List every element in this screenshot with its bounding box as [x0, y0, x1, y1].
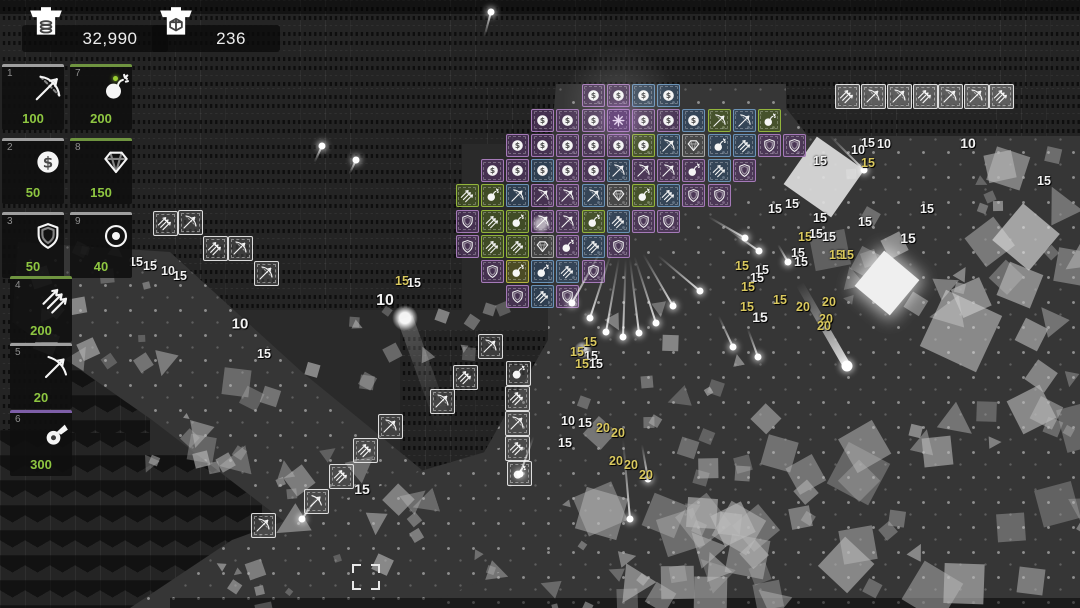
tower-tile-shield[interactable]	[657, 210, 680, 233]
damage-number: 20	[639, 468, 653, 482]
tower-tile-arrows[interactable]	[481, 235, 504, 258]
slot-rank-bar	[70, 138, 132, 141]
svg-text:$: $	[515, 141, 520, 150]
damage-number: 15	[558, 436, 572, 450]
tower-tile-diamond[interactable]	[682, 134, 705, 157]
enemy-square	[461, 346, 476, 361]
queued-tower-arrows[interactable]	[835, 84, 860, 109]
damage-number: 15	[589, 357, 603, 371]
tower-tile-arrows[interactable]	[481, 210, 504, 233]
projectile	[756, 248, 763, 255]
projectile	[319, 143, 326, 150]
slot-hotkey: 3	[7, 216, 13, 227]
damage-number: 15	[794, 255, 808, 269]
damage-number: 20	[817, 319, 831, 333]
projectile	[755, 354, 762, 361]
tower-tile-coin[interactable]: $	[531, 134, 554, 157]
damage-number: 10	[561, 414, 575, 428]
enemy-square	[922, 435, 954, 467]
tower-tile-arrows[interactable]	[708, 159, 731, 182]
damage-number: 15	[741, 280, 755, 294]
damage-number: 10	[877, 137, 891, 151]
svg-text:$: $	[540, 116, 545, 125]
damage-number: 15	[822, 230, 836, 244]
projectile	[488, 9, 495, 16]
enemy-square	[221, 368, 251, 398]
glow-effect	[531, 214, 551, 234]
slot-hotkey: 8	[75, 142, 81, 153]
slot-hotkey: 4	[15, 280, 21, 291]
gold-value: 32,990	[83, 29, 138, 49]
ghost-tower-crossbow[interactable]	[478, 334, 503, 359]
damage-number: 20	[822, 295, 836, 309]
ghost-tower-arrows[interactable]	[353, 438, 378, 463]
tower-tile-arrows[interactable]	[531, 285, 554, 308]
tower-tile-shield[interactable]	[481, 260, 504, 283]
slot-hotkey: 9	[75, 216, 81, 227]
slot-rank-bar	[10, 276, 72, 279]
gem-value: 236	[216, 29, 246, 49]
tower-tile-shield[interactable]	[758, 134, 781, 157]
shop-slot-3[interactable]: 350	[2, 212, 64, 278]
tower-tile-crossbow[interactable]	[607, 159, 630, 182]
ghost-tower-crossbow[interactable]	[251, 513, 276, 538]
tower-tile-shield[interactable]	[632, 210, 655, 233]
damage-number: 10	[376, 292, 394, 310]
tower-tile-coin[interactable]: $	[682, 109, 705, 132]
tower-tile-coin[interactable]: $	[582, 159, 605, 182]
slot-cost: 20	[10, 390, 72, 405]
shop-slot-1[interactable]: 1100	[2, 64, 64, 130]
enemy-square	[254, 585, 264, 595]
ghost-tower-crossbow[interactable]	[228, 236, 253, 261]
queued-tower-crossbow[interactable]	[938, 84, 963, 109]
projectile	[353, 157, 360, 164]
slot-hotkey: 7	[75, 68, 81, 79]
tower-tile-shield[interactable]	[708, 184, 731, 207]
damage-number: 15	[813, 154, 827, 168]
enemy-square	[463, 313, 480, 330]
tower-tile-crossbow[interactable]	[506, 184, 529, 207]
enemy-square	[976, 401, 996, 421]
enemy-square	[138, 335, 146, 343]
slot-rank-bar	[10, 343, 72, 346]
projectile	[842, 361, 853, 372]
damage-number: 15	[813, 211, 827, 225]
tower-tile-coin[interactable]: $	[531, 109, 554, 132]
tower-tile-bomb[interactable]	[481, 184, 504, 207]
tower-tile-arrows[interactable]	[657, 184, 680, 207]
slot-rank-bar	[2, 64, 64, 67]
damage-number: 15	[257, 347, 271, 361]
enemy-square	[359, 374, 375, 390]
damage-number: 10	[851, 143, 865, 157]
placement-cursor	[352, 564, 380, 590]
enemy-square	[304, 361, 321, 378]
tower-tile-crossbow[interactable]	[632, 159, 655, 182]
ghost-tower-crossbow[interactable]	[178, 210, 203, 235]
tower-tile-crossbow[interactable]	[582, 184, 605, 207]
projectile	[627, 516, 634, 523]
gold-chest-icon	[26, 3, 66, 43]
damage-number: 15	[1037, 174, 1051, 188]
enemy-square	[698, 458, 719, 479]
ghost-tower-crossbow[interactable]	[254, 261, 279, 286]
damage-number: 15	[768, 202, 782, 216]
damage-number: 15	[583, 335, 597, 349]
projectile	[569, 300, 576, 307]
shop-slot-6[interactable]: 6300	[10, 410, 72, 476]
slot-hotkey: 2	[7, 142, 13, 153]
tower-tile-bomb[interactable]	[582, 210, 605, 233]
projectile	[299, 516, 306, 523]
slot-rank-bar	[2, 212, 64, 215]
projectile	[670, 303, 677, 310]
slot-cost: 200	[70, 111, 132, 126]
queued-tower-arrows[interactable]	[913, 84, 938, 109]
tower-tile-arrows[interactable]	[556, 260, 579, 283]
tower-tile-crossbow[interactable]	[733, 109, 756, 132]
damage-number: 20	[624, 458, 638, 472]
ghost-tower-arrows[interactable]	[203, 236, 228, 261]
slot-cost: 200	[10, 323, 72, 338]
slot-hotkey: 1	[7, 68, 13, 79]
enemy-square	[996, 512, 1026, 542]
tower-tile-shield[interactable]	[682, 184, 705, 207]
slot-hotkey: 5	[15, 347, 21, 358]
damage-number: 20	[611, 426, 625, 440]
projectile	[730, 344, 737, 351]
projectile	[587, 315, 594, 322]
tower-tile-shield[interactable]	[733, 159, 756, 182]
svg-text:$: $	[540, 141, 545, 150]
damage-number: 15	[752, 309, 768, 325]
slot-cost: 300	[10, 457, 72, 472]
svg-text:$: $	[540, 166, 545, 175]
damage-number: 20	[596, 421, 610, 435]
shop-slot-7[interactable]: 7200	[70, 64, 132, 130]
enemy-square	[944, 563, 985, 604]
svg-text:$: $	[490, 166, 495, 175]
ghost-tower-crossbow[interactable]	[505, 411, 530, 436]
tower-tile-arrows[interactable]	[733, 134, 756, 157]
ghost-tower-crossbow[interactable]	[378, 414, 403, 439]
tower-tile-bomb[interactable]	[556, 235, 579, 258]
damage-number: 15	[785, 197, 799, 211]
svg-text:$: $	[691, 116, 696, 125]
tower-tile-diamond[interactable]	[531, 235, 554, 258]
slot-cost: 100	[2, 111, 64, 126]
slot-cost: 150	[70, 185, 132, 200]
enemy-square	[641, 375, 654, 388]
tower-tile-crossbow[interactable]	[657, 159, 680, 182]
tower-tile-bomb[interactable]	[632, 184, 655, 207]
tower-tile-crossbow[interactable]	[708, 109, 731, 132]
tower-tile-bomb[interactable]	[506, 260, 529, 283]
damage-number: 15	[173, 269, 187, 283]
tower-tile-coin[interactable]: $	[531, 159, 554, 182]
slot-rank-bar	[70, 64, 132, 67]
damage-number: 15	[858, 215, 872, 229]
queued-tower-crossbow[interactable]	[887, 84, 912, 109]
damage-number: 10	[232, 316, 249, 333]
game-stage: $$$$$$$$$$$$$$$$$$$$$ 151510151015101515…	[0, 0, 1080, 608]
queued-tower-crossbow[interactable]	[861, 84, 886, 109]
shop-slot-9[interactable]: 940	[70, 212, 132, 278]
ghost-tower-arrows[interactable]	[153, 211, 178, 236]
slot-cost: 50	[2, 185, 64, 200]
slot-rank-bar	[10, 410, 72, 413]
damage-number: 15	[861, 156, 875, 170]
projectile	[620, 334, 627, 341]
gem-chest-icon	[156, 3, 196, 43]
slot-hotkey: 6	[15, 414, 21, 425]
tower-tile-diamond[interactable]	[607, 184, 630, 207]
tower-tile-shield[interactable]	[506, 285, 529, 308]
shop-slot-8[interactable]: 8150	[70, 138, 132, 204]
damage-number: 15	[578, 416, 592, 430]
svg-text:$: $	[515, 166, 520, 175]
enemy-square	[349, 317, 360, 328]
damage-number: 15	[900, 230, 916, 246]
shop-slot-4[interactable]: 4200	[10, 276, 72, 342]
slot-cost: 40	[70, 259, 132, 274]
damage-number: 15	[354, 481, 370, 497]
ghost-tower-arrows[interactable]	[329, 464, 354, 489]
tower-tile-bomb[interactable]	[758, 109, 781, 132]
tower-tile-shield[interactable]	[456, 210, 479, 233]
tower-tile-arrows[interactable]	[506, 235, 529, 258]
damage-number: 10	[960, 135, 976, 151]
slot-cost: 50	[2, 259, 64, 274]
enemy-square	[661, 335, 678, 352]
tower-tile-bomb[interactable]	[708, 134, 731, 157]
svg-text:$: $	[565, 166, 570, 175]
slot-rank-bar	[70, 212, 132, 215]
svg-text:$: $	[565, 141, 570, 150]
enemy-square	[1016, 566, 1045, 595]
tower-tile-arrows[interactable]	[456, 184, 479, 207]
projectile	[517, 471, 524, 478]
glow-effect	[596, 96, 644, 144]
svg-text:$: $	[43, 153, 53, 171]
damage-number: 20	[796, 300, 810, 314]
damage-number: 15	[920, 202, 934, 216]
projectile	[636, 330, 643, 337]
tower-tile-coin[interactable]: $	[506, 134, 529, 157]
enemy-square	[993, 201, 1004, 212]
tower-tile-crossbow[interactable]	[531, 184, 554, 207]
damage-number: 15	[840, 248, 854, 262]
enemy-square	[888, 510, 906, 528]
tower-tile-crossbow[interactable]	[556, 184, 579, 207]
ghost-tower-arrows[interactable]	[505, 386, 530, 411]
damage-number: 15	[735, 259, 749, 273]
tower-tile-coin[interactable]: $	[556, 159, 579, 182]
tower-tile-bomb[interactable]	[531, 260, 554, 283]
enemy-square	[669, 565, 687, 583]
enemy-square	[434, 308, 450, 324]
tower-tile-bomb[interactable]	[682, 159, 705, 182]
projectile	[653, 320, 660, 327]
tower-tile-bomb[interactable]	[506, 210, 529, 233]
queued-tower-arrows[interactable]	[989, 84, 1014, 109]
svg-text:$: $	[590, 166, 595, 175]
slot-rank-bar	[2, 138, 64, 141]
shop-slot-2[interactable]: 2$50	[2, 138, 64, 204]
tower-tile-arrows[interactable]	[582, 235, 605, 258]
damage-number: 15	[407, 276, 421, 290]
damage-number: 15	[773, 293, 787, 307]
tower-tile-coin[interactable]: $	[481, 159, 504, 182]
damage-number: 15	[143, 259, 157, 273]
tower-tile-shield[interactable]	[783, 134, 806, 157]
upgrade-spark-icon	[113, 76, 118, 81]
ghost-tower-bomb[interactable]	[506, 361, 531, 386]
queued-tower-crossbow[interactable]	[964, 84, 989, 109]
damage-number: 15	[809, 227, 823, 241]
tower-tile-shield[interactable]	[456, 235, 479, 258]
projectile	[603, 329, 610, 336]
shop-slot-5[interactable]: 520	[10, 343, 72, 409]
ghost-tower-arrows[interactable]	[453, 365, 478, 390]
damage-number: 15	[575, 357, 589, 371]
projectile	[697, 288, 704, 295]
tower-tile-coin[interactable]: $	[506, 159, 529, 182]
tower-tile-crossbow[interactable]	[556, 210, 579, 233]
damage-number: 20	[609, 454, 623, 468]
tower-tile-arrows[interactable]	[607, 210, 630, 233]
